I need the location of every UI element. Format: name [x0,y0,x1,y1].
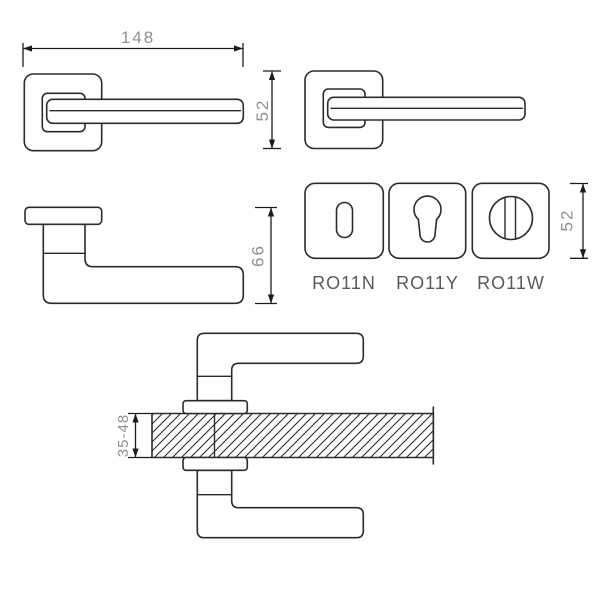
lower-handle-outline [197,470,363,537]
keyhole-icon [337,203,353,238]
rosette-outline [305,183,383,258]
arrowhead-icon [132,414,138,423]
rosette-outline [389,183,466,258]
width-dimension: 148 [23,28,243,67]
rosette-label: RO11W [477,273,545,293]
arrowhead-icon [268,208,274,217]
arrowhead-icon [269,71,275,80]
rosette-label: RO11N [312,273,376,293]
door-handle-technical-drawing: 148 52 66 [0,0,600,600]
height-dimension-value: 66 [248,244,267,267]
handle-profile-outline [43,224,243,303]
arrowhead-icon [580,184,586,193]
door-panel-hatch [152,414,433,458]
euro-cylinder-icon [414,196,441,242]
door-thickness-value: 35-48 [115,414,132,457]
width-dimension-value: 148 [121,28,155,47]
wc-turn-icon [490,197,533,240]
rosette-cylinder-variant: RO11Y [389,183,466,293]
arrowhead-icon [234,45,243,51]
front-view-drawing: 52 [253,71,525,149]
arrowhead-icon [269,140,275,149]
upper-rosette-profile [183,401,247,414]
height-dimension-value: 52 [557,209,576,232]
lower-rosette-profile [183,458,247,471]
technical-drawing-sheet: 148 52 66 [0,0,600,600]
height-dimension: 66 [248,208,277,304]
arrowhead-icon [580,249,586,258]
side-view-drawing: 66 [25,207,277,303]
height-dimension: 52 [253,71,281,149]
top-view-drawing: 148 [23,28,243,151]
rosette-variants: RO11N RO11Y RO11W 52 [305,183,588,293]
arrowhead-icon [132,449,138,458]
rosette-wc-variant: RO11W [472,183,549,293]
rosette-keyhole-variant: RO11N [305,183,383,293]
height-dimension: 52 [557,184,588,259]
door-thickness-dimension: 35-48 [115,414,152,458]
upper-handle-outline [197,333,363,400]
arrowhead-icon [23,45,32,51]
arrowhead-icon [268,295,274,304]
height-dimension-value: 52 [253,99,272,122]
rosette-label: RO11Y [396,273,459,293]
rosette-profile-outline [25,207,102,224]
section-view-drawing: 35-48 [115,333,434,537]
rosette-outline [472,183,549,258]
